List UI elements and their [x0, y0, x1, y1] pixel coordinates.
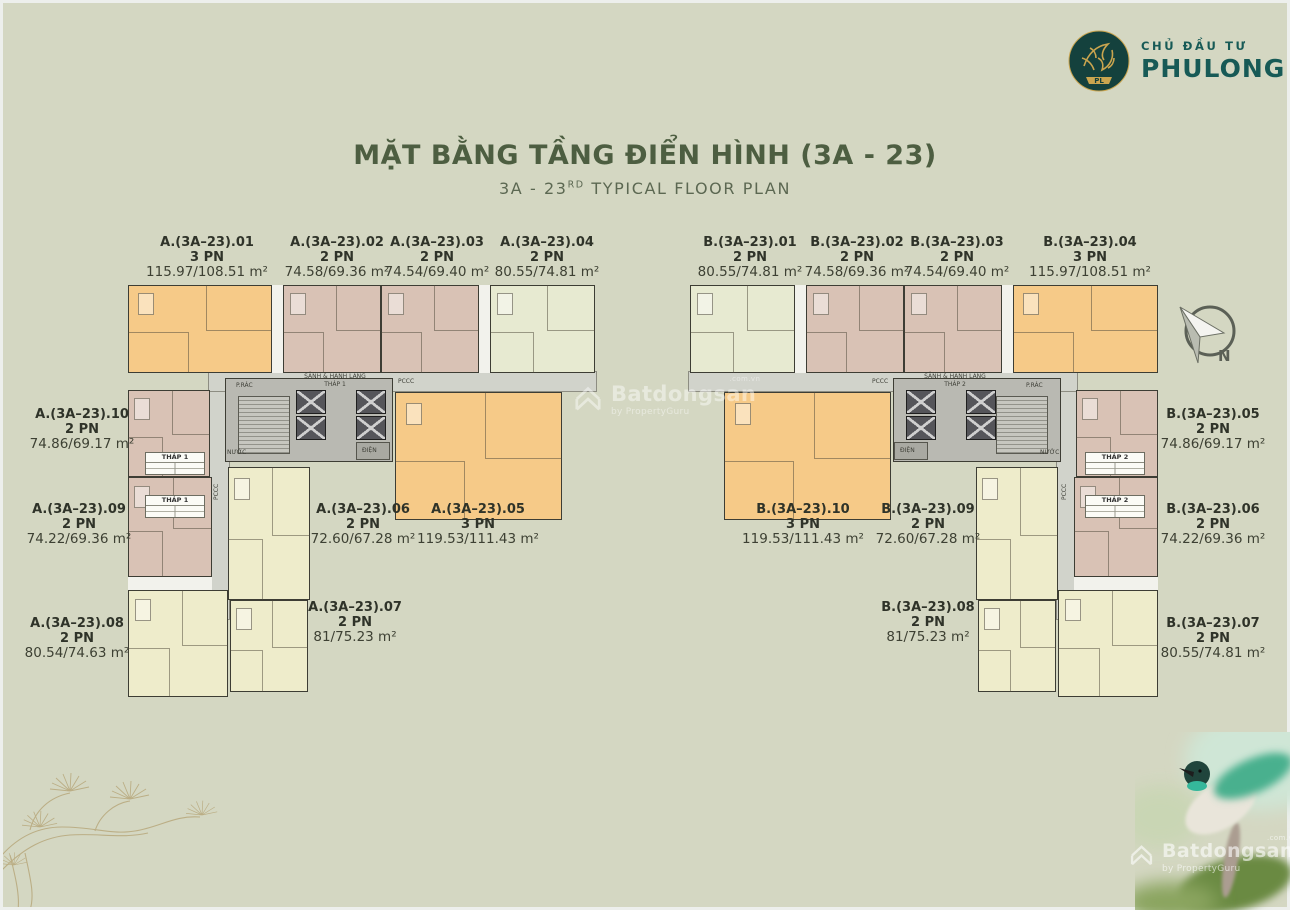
apartment-unit-A05	[395, 392, 562, 520]
elevator-icon	[356, 416, 386, 440]
trash-room-label: P.RÁC	[1026, 382, 1043, 390]
apartment-area: 80.55/74.81 m²	[1138, 646, 1288, 661]
compass-north-label: N	[1218, 347, 1231, 365]
apartment-unit-A02	[283, 285, 381, 373]
apartment-bedrooms: 2 PN	[1138, 423, 1288, 438]
apartment-area: 74.86/69.17 m²	[7, 437, 157, 452]
unit-gap	[128, 577, 212, 590]
apartment-name: B.(3A–23).04	[1015, 236, 1165, 251]
apartment-name: B.(3A–23).03	[882, 236, 1032, 251]
tower1-info-table: THÁP 1	[145, 452, 205, 475]
apartment-bedrooms: 2 PN	[1138, 518, 1288, 533]
apartment-bedrooms: 2 PN	[288, 518, 438, 533]
stairs-tower2	[996, 396, 1048, 454]
pine-branch-decoration	[0, 735, 235, 910]
electric-label: ĐIỆN	[900, 447, 915, 455]
apartment-area: 74.22/69.36 m²	[1138, 532, 1288, 547]
logo-monogram: PL	[1094, 77, 1104, 85]
subtitle-ordinal: RD	[568, 180, 585, 191]
phulong-logo-icon: PL	[1068, 30, 1130, 92]
tower1-info-table: THÁP 1	[145, 495, 205, 518]
page-title: MẶT BẰNG TẦNG ĐIỂN HÌNH (3A - 23)	[0, 140, 1290, 171]
apartment-area: 80.54/74.63 m²	[2, 646, 152, 661]
apartment-bedrooms: 2 PN	[4, 518, 154, 533]
apartment-bedrooms: 2 PN	[7, 423, 157, 438]
corridor-hall-text: SẢNH & HÀNH LANG	[924, 373, 986, 380]
apartment-area: 74.22/69.36 m²	[4, 532, 154, 547]
apartment-label-B05: B.(3A–23).052 PN74.86/69.17 m²	[1138, 408, 1288, 452]
tower1-table-title: THÁP 1	[146, 496, 204, 505]
elevator-icon	[906, 390, 936, 414]
apartment-name: B.(3A–23).06	[1138, 503, 1288, 518]
apartment-area: 115.97/108.51 m²	[1015, 265, 1165, 280]
subtitle-prefix: 3A - 23	[499, 179, 568, 198]
apartment-label-A07: A.(3A–23).072 PN81/75.23 m²	[280, 601, 430, 645]
electric-label: ĐIỆN	[362, 447, 377, 455]
apartment-bedrooms: 2 PN	[2, 632, 152, 647]
apartment-area: 74.86/69.17 m²	[1138, 437, 1288, 452]
elevator-icon	[296, 416, 326, 440]
apartment-bedrooms: 2 PN	[853, 616, 1003, 631]
water-room-label: NƯỚC	[227, 449, 246, 457]
corridor-tower2-text: THÁP 2	[944, 381, 966, 388]
floor-plan-page: { "header": { "developer_label": "CHỦ ĐẦ…	[0, 0, 1290, 910]
apartment-name: A.(3A–23).06	[288, 503, 438, 518]
apartment-name: B.(3A–23).08	[853, 601, 1003, 616]
apartment-label-B03: B.(3A–23).032 PN74.54/69.40 m²	[882, 236, 1032, 280]
elevator-icon	[906, 416, 936, 440]
corridor-hall-text: SẢNH & HÀNH LANG	[304, 373, 366, 380]
elevator-icon	[966, 390, 996, 414]
tower-table-rows	[1086, 462, 1144, 474]
apartment-name: A.(3A–23).09	[4, 503, 154, 518]
unit-gap	[272, 285, 283, 373]
apartment-label-A10: A.(3A–23).102 PN74.86/69.17 m²	[7, 408, 157, 452]
apartment-bedrooms: 2 PN	[280, 616, 430, 631]
compass: N	[1168, 293, 1248, 377]
fire-label: PCCC	[398, 378, 414, 386]
apartment-unit-B03	[904, 285, 1002, 373]
apartment-bedrooms: 2 PN	[882, 251, 1032, 266]
apartment-bedrooms: 3 PN	[728, 518, 878, 533]
apartment-unit-A04	[490, 285, 595, 373]
tower-table-rows	[1086, 505, 1144, 517]
apartment-name: A.(3A–23).08	[2, 617, 152, 632]
page-subtitle: 3A - 23RD TYPICAL FLOOR PLAN	[0, 179, 1290, 198]
fire-label-vertical: PCCC	[1061, 484, 1069, 500]
apartment-name: A.(3A–23).04	[472, 236, 622, 251]
apartment-name: B.(3A–23).05	[1138, 408, 1288, 423]
unit-gap	[1002, 285, 1013, 373]
apartment-area: 81/75.23 m²	[280, 630, 430, 645]
apartment-name: A.(3A–23).01	[132, 236, 282, 251]
elevator-icon	[356, 390, 386, 414]
apartment-unit-A03	[381, 285, 479, 373]
water-room-label: NƯỚC	[1040, 449, 1059, 457]
tower2-info-table: THÁP 2	[1085, 452, 1145, 475]
apartment-unit-B02	[806, 285, 904, 373]
tower-table-rows	[146, 462, 204, 474]
unit-gap	[479, 285, 490, 373]
apartment-bedrooms: 3 PN	[1015, 251, 1165, 266]
apartment-label-A06: A.(3A–23).062 PN72.60/67.28 m²	[288, 503, 438, 547]
apartment-area: 74.54/69.40 m²	[882, 265, 1032, 280]
elevator-icon	[296, 390, 326, 414]
apartment-label-B07: B.(3A–23).072 PN80.55/74.81 m²	[1138, 617, 1288, 661]
bird-decoration	[1135, 732, 1290, 910]
corridor-label-tower1: SẢNH & HÀNH LANG THÁP 1	[290, 373, 380, 388]
stairs-tower1	[238, 396, 290, 454]
unit-gap	[1074, 577, 1158, 590]
developer-label: CHỦ ĐẦU TƯ	[1141, 39, 1285, 53]
apartment-label-A09: A.(3A–23).092 PN74.22/69.36 m²	[4, 503, 154, 547]
compass-icon: N	[1168, 293, 1248, 373]
apartment-area: 119.53/111.43 m²	[728, 532, 878, 547]
apartment-label-A01: A.(3A–23).013 PN115.97/108.51 m²	[132, 236, 282, 280]
developer-name: PHULONG	[1141, 54, 1285, 83]
tower2-info-table: THÁP 2	[1085, 495, 1145, 518]
apartment-area: 80.55/74.81 m²	[472, 265, 622, 280]
elevator-icon	[966, 416, 996, 440]
apartment-area: 81/75.23 m²	[853, 630, 1003, 645]
subtitle-rest: TYPICAL FLOOR PLAN	[585, 179, 791, 198]
apartment-label-B10: B.(3A–23).103 PN119.53/111.43 m²	[728, 503, 878, 547]
apartment-label-B08: B.(3A–23).082 PN81/75.23 m²	[853, 601, 1003, 645]
apartment-name: B.(3A–23).10	[728, 503, 878, 518]
corridor-tower1-text: THÁP 1	[324, 381, 346, 388]
corridor-label-tower2: SẢNH & HÀNH LANG THÁP 2	[910, 373, 1000, 388]
apartment-unit-B04	[1013, 285, 1158, 373]
apartment-label-A08: A.(3A–23).082 PN80.54/74.63 m²	[2, 617, 152, 661]
tower2-table-title: THÁP 2	[1086, 496, 1144, 505]
apartment-unit-B10	[724, 392, 891, 520]
apartment-name: A.(3A–23).10	[7, 408, 157, 423]
apartment-unit-B01	[690, 285, 795, 373]
apartment-label-B06: B.(3A–23).062 PN74.22/69.36 m²	[1138, 503, 1288, 547]
apartment-name: B.(3A–23).07	[1138, 617, 1288, 632]
tower-table-rows	[146, 505, 204, 517]
apartment-area: 115.97/108.51 m²	[132, 265, 282, 280]
fire-label: PCCC	[872, 378, 888, 386]
tower1-table-title: THÁP 1	[146, 453, 204, 462]
apartment-bedrooms: 2 PN	[1138, 632, 1288, 647]
trash-room-label: P.RÁC	[236, 382, 253, 390]
apartment-label-B04: B.(3A–23).043 PN115.97/108.51 m²	[1015, 236, 1165, 280]
apartment-bedrooms: 3 PN	[132, 251, 282, 266]
apartment-unit-A01	[128, 285, 272, 373]
apartment-area: 72.60/67.28 m²	[288, 532, 438, 547]
developer-logo: PL CHỦ ĐẦU TƯ PHULONG	[1068, 30, 1285, 92]
fire-label-vertical: PCCC	[213, 484, 221, 500]
tower2-table-title: THÁP 2	[1086, 453, 1144, 462]
apartment-name: A.(3A–23).07	[280, 601, 430, 616]
unit-gap	[795, 285, 806, 373]
apartment-label-A04: A.(3A–23).042 PN80.55/74.81 m²	[472, 236, 622, 280]
apartment-bedrooms: 2 PN	[472, 251, 622, 266]
